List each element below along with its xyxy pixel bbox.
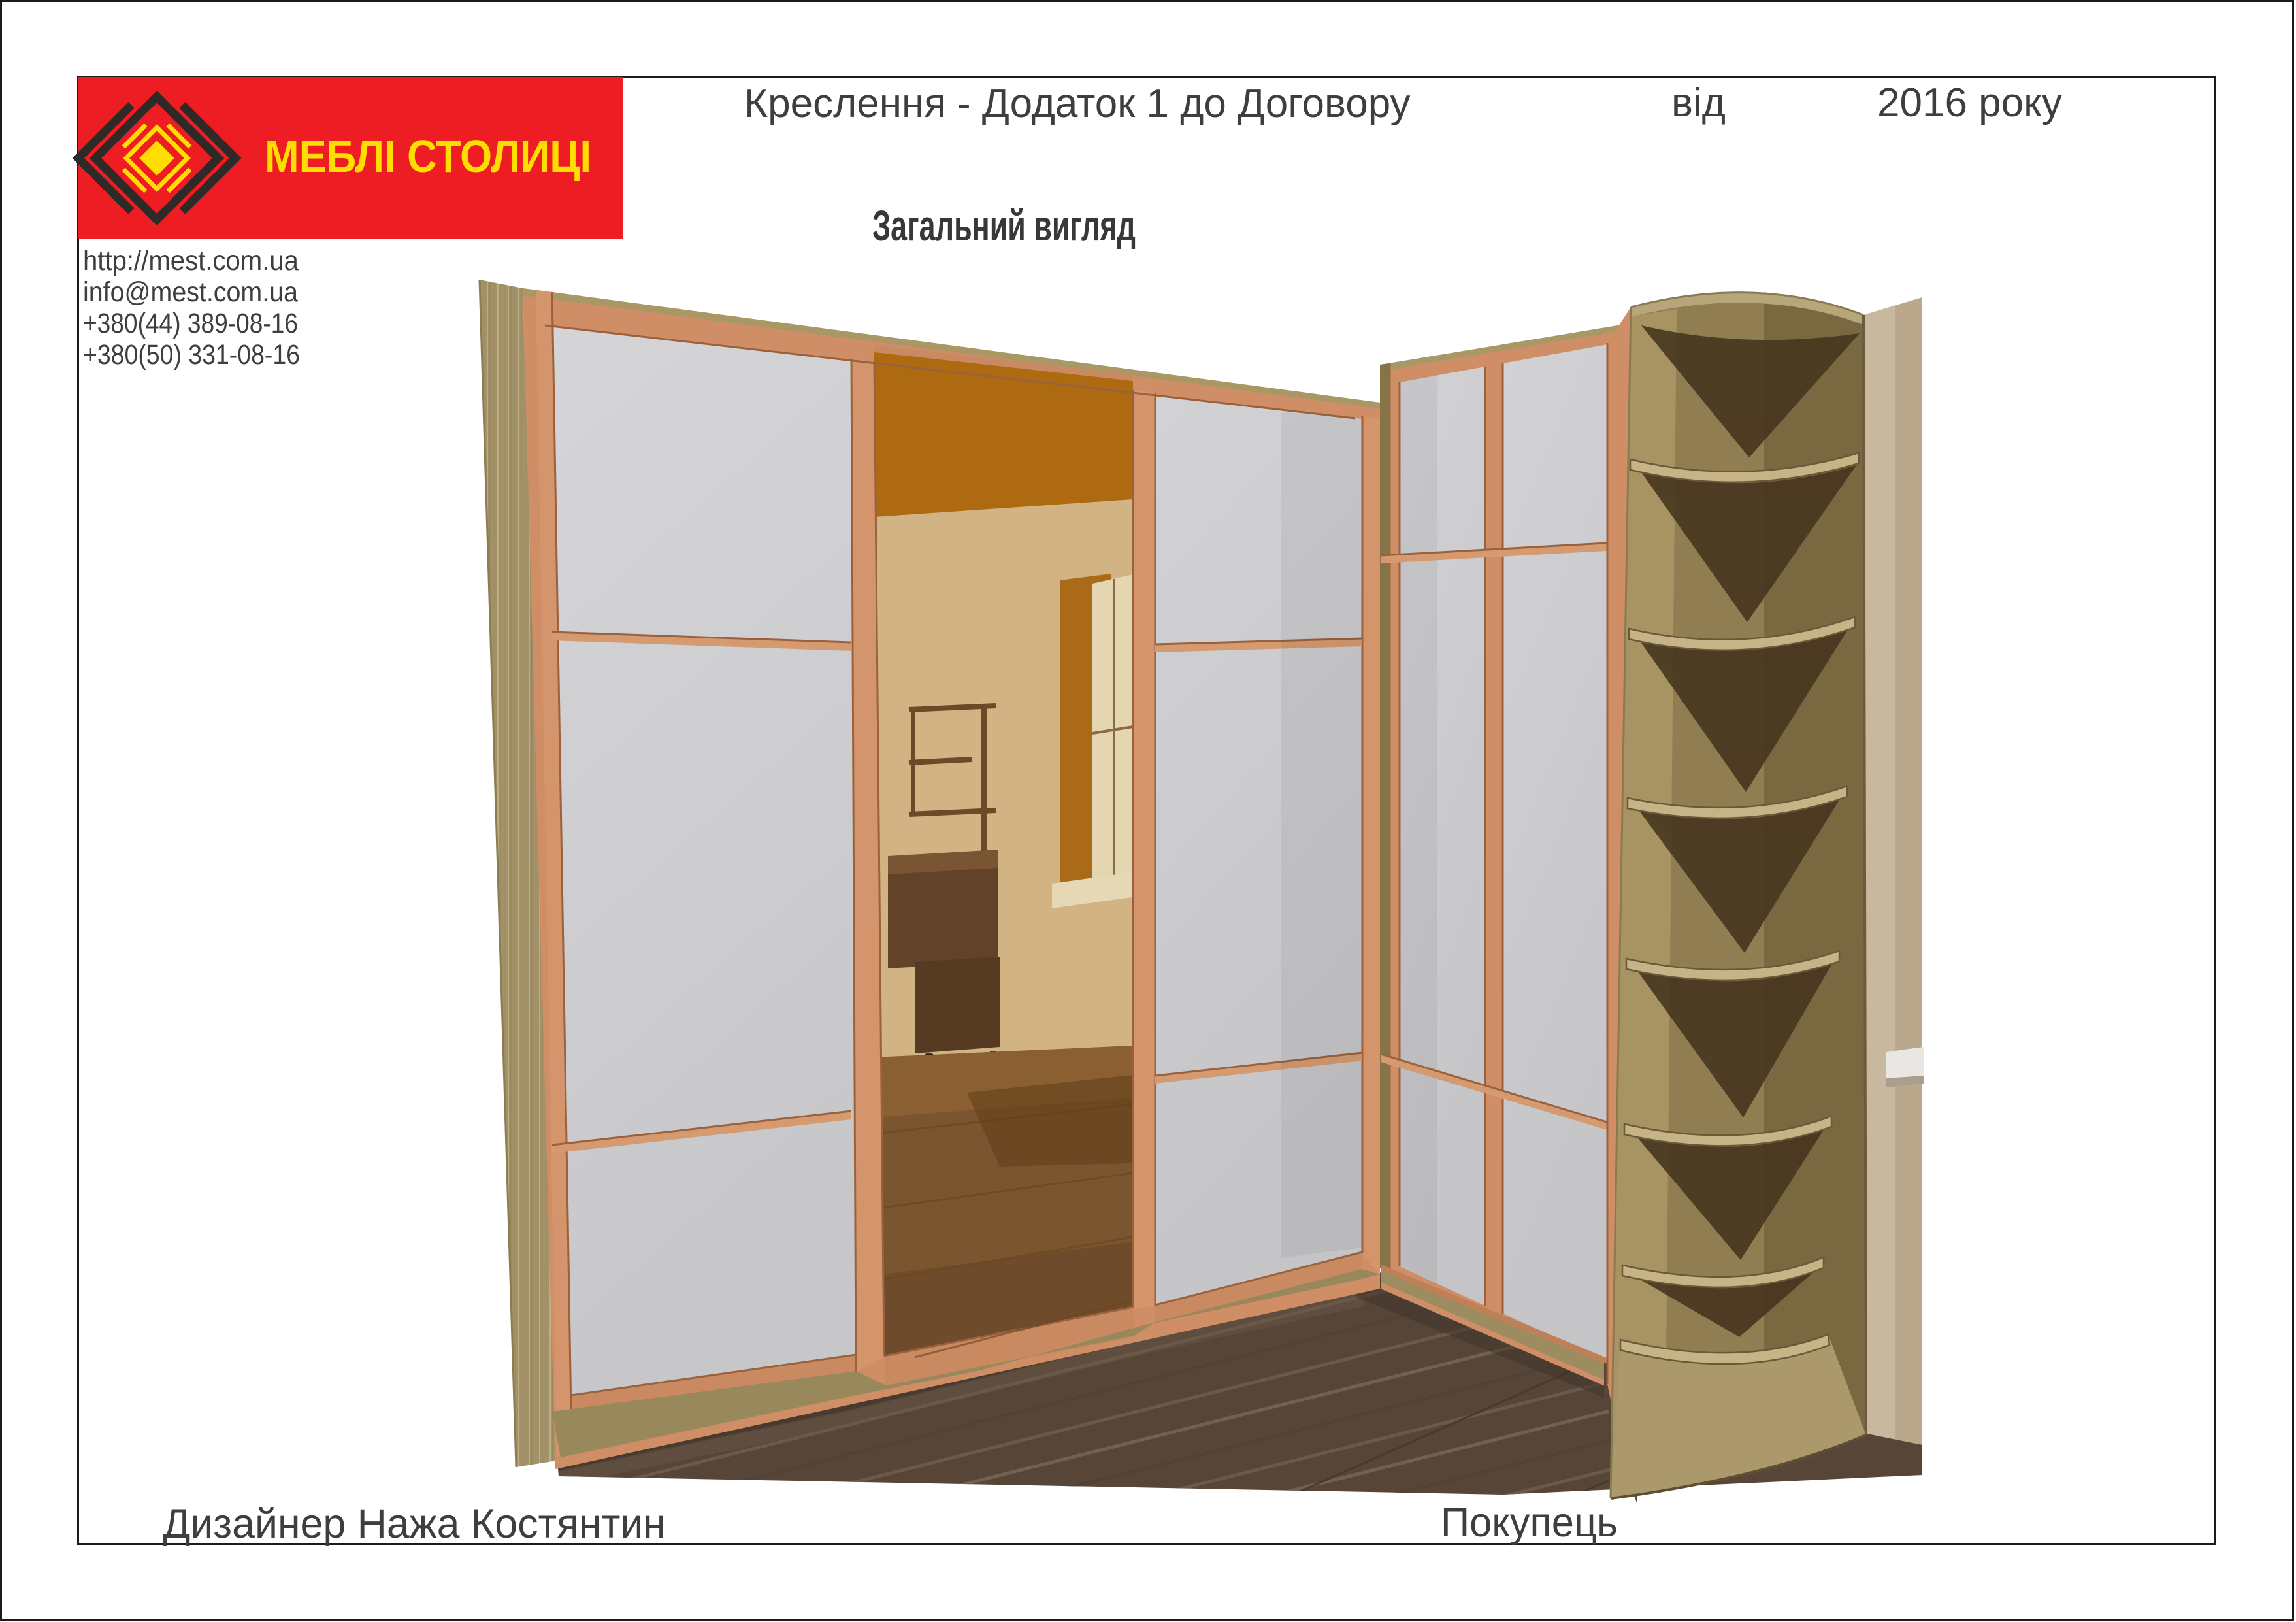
svg-text:від: від	[1671, 80, 1726, 125]
svg-text:2016 року: 2016 року	[1877, 80, 2062, 125]
svg-text:Дизайнер Нажа Костянтин: Дизайнер Нажа Костянтин	[163, 1501, 666, 1547]
svg-text:http://mest.com.ua: http://mest.com.ua	[83, 245, 299, 276]
svg-text:Покупець: Покупець	[1441, 1500, 1618, 1546]
svg-text:МЕБЛІ СТОЛИЦІ: МЕБЛІ СТОЛИЦІ	[265, 131, 591, 182]
svg-text:Загальний вигляд: Загальний вигляд	[872, 201, 1136, 250]
svg-text:+380(50) 331-08-16: +380(50) 331-08-16	[83, 339, 300, 371]
svg-text:Креслення - Додаток 1 до Догов: Креслення - Додаток 1 до Договору	[744, 81, 1411, 126]
svg-text:info@mest.com.ua: info@mest.com.ua	[83, 276, 298, 308]
svg-text:+380(44) 389-08-16: +380(44) 389-08-16	[83, 308, 298, 339]
